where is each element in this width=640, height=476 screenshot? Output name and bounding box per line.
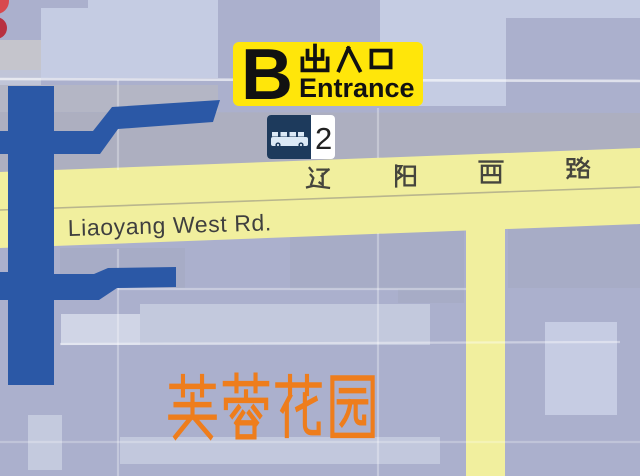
svg-text:Entrance: Entrance: [299, 73, 415, 103]
svg-text:B: B: [241, 35, 293, 115]
svg-text:2: 2: [315, 121, 332, 156]
